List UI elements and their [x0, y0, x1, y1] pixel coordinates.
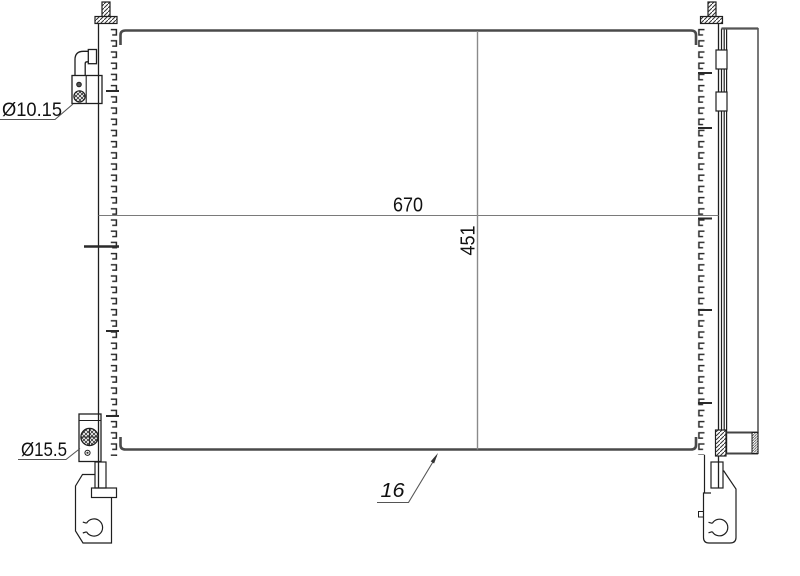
right-bracket-hook-hole — [709, 519, 728, 536]
right-stud-flange — [701, 17, 723, 24]
right-bracket-notch — [699, 512, 704, 518]
core-bottom-edge — [121, 437, 697, 450]
left-stud-flange — [95, 17, 117, 24]
dim-depth-value: 16 — [381, 480, 406, 502]
side-clamp-pad-lower — [716, 92, 727, 111]
inlet-port-opening — [74, 91, 85, 102]
technical-drawing-canvas: 670 451 16 Ø10.15 Ø15.5 — [0, 0, 800, 576]
inlet-collar — [88, 50, 96, 64]
left-mounting-stud — [102, 2, 110, 17]
left-mounting-bracket — [76, 462, 117, 543]
right-bracket-body — [704, 471, 737, 544]
side-view — [716, 29, 759, 457]
outlet-pilot-dot — [86, 452, 88, 454]
right-header-tank — [696, 2, 722, 493]
dim-height-value: 451 — [458, 226, 480, 256]
label-upper-port: Ø10.15 — [0, 100, 73, 121]
dim-depth-arrowhead — [431, 453, 438, 464]
lower-port-value: Ø15.5 — [21, 440, 67, 461]
right-fin-serrations — [696, 28, 705, 455]
label-lower-port: Ø15.5 — [18, 440, 80, 461]
dimension-width: 670 — [99, 195, 719, 217]
dim-width-value: 670 — [393, 195, 423, 217]
side-view-body — [727, 29, 758, 433]
condenser-drawing: 670 451 16 Ø10.15 Ø15.5 — [0, 0, 800, 576]
side-bottom-boss — [716, 430, 727, 456]
lower-port-fitting — [79, 414, 101, 462]
side-clamp-pad-upper — [716, 50, 727, 69]
left-bracket-tab — [95, 462, 106, 488]
inlet-elbow-outer — [75, 51, 89, 75]
dimension-height: 451 — [458, 31, 480, 450]
dimension-depth: 16 — [377, 453, 438, 503]
left-bracket-plate — [92, 488, 117, 498]
upper-port-fitting — [72, 50, 102, 104]
right-bracket-tab — [711, 462, 723, 488]
left-bracket-hook-hole — [83, 519, 103, 536]
condenser-core — [121, 31, 697, 450]
core-top-edge — [121, 31, 697, 46]
inlet-pilot-hole — [77, 82, 82, 87]
left-fin-serrations — [110, 28, 119, 456]
right-mounting-stud — [708, 2, 716, 17]
side-bottom-end-cap — [752, 433, 758, 454]
upper-port-value: Ø10.15 — [2, 100, 62, 121]
